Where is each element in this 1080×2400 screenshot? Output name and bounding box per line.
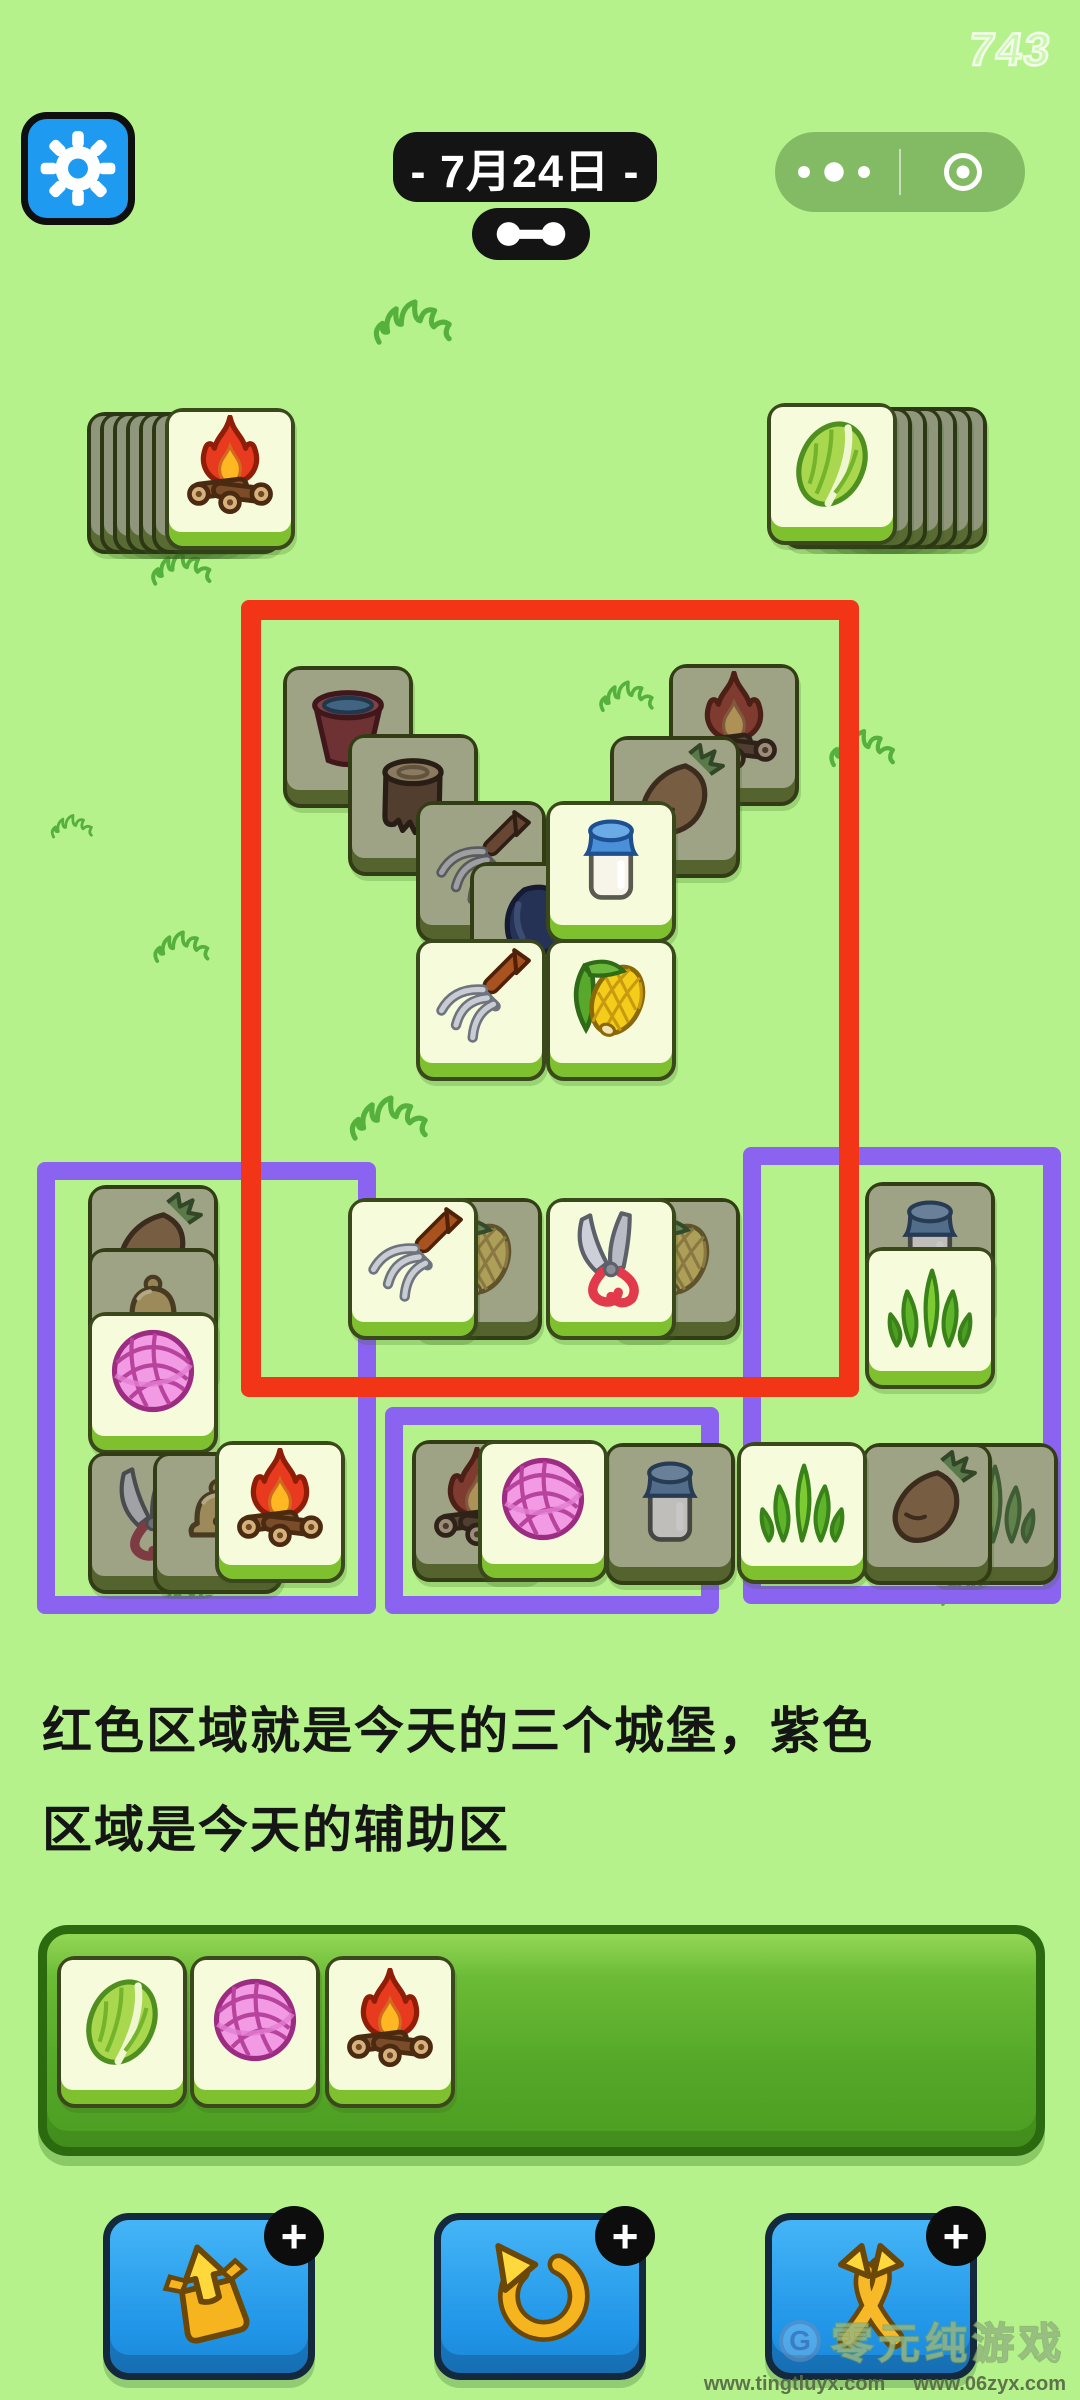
plus-badge[interactable]: + (595, 2206, 655, 2266)
tile-grass[interactable] (865, 1247, 995, 1389)
home-target-icon (938, 147, 988, 197)
tile-yarn[interactable] (88, 1312, 218, 1454)
tile-corn[interactable] (546, 939, 676, 1081)
remaining-counter: 743 (965, 22, 1055, 76)
undo-prop-button[interactable]: + (434, 2213, 646, 2380)
more-dots-icon (791, 157, 883, 187)
tile-yarn[interactable] (478, 1440, 608, 1582)
tray-tile-cabbage (57, 1956, 187, 2108)
gear-icon (36, 127, 120, 210)
watermark-url-1: www.tingtluyx.com (704, 2373, 886, 2396)
tiles-layer (0, 0, 1080, 2400)
caption-line1: 红色区域就是今天的三个城堡，紫色 (42, 1682, 1052, 1781)
settings-button[interactable] (21, 112, 135, 225)
tile-milk (605, 1443, 735, 1585)
plus-badge[interactable]: + (264, 2206, 324, 2266)
tile-milk[interactable] (546, 801, 676, 943)
tile-grass[interactable] (737, 1442, 867, 1584)
eject-prop-button[interactable]: + (103, 2213, 315, 2380)
tile-fire[interactable] (165, 408, 295, 550)
tray-tile-fire (325, 1956, 455, 2108)
tile-pitchfork[interactable] (348, 1198, 478, 1340)
eject-icon (151, 2236, 267, 2352)
undo-icon (482, 2236, 598, 2352)
date-link-pill (472, 208, 590, 260)
watermark-brand: 零元纯游戏 (831, 2310, 1066, 2371)
tile-shears[interactable] (546, 1198, 676, 1340)
plus-badge[interactable]: + (926, 2206, 986, 2266)
game-screen: 743 - 7月24日 - 红色区域就是今天的三个城堡，紫色 区域是今天的辅助区… (0, 0, 1080, 2400)
tray-tile-yarn (190, 1956, 320, 2108)
tile-fire[interactable] (215, 1441, 345, 1583)
tile-pitchfork[interactable] (416, 939, 546, 1081)
caption: 红色区域就是今天的三个城堡，紫色 区域是今天的辅助区 (42, 1682, 1052, 1880)
watermark-url-2: www.06zyx.com (913, 2373, 1066, 2396)
tile-carrot (862, 1443, 992, 1585)
caption-line2: 区域是今天的辅助区 (42, 1781, 1052, 1880)
watermark: G 零元纯游戏 www.tingtluyx.com www.06zyx.com (704, 2310, 1066, 2396)
tile-cabbage[interactable] (767, 403, 897, 545)
exit-button[interactable] (901, 132, 1025, 212)
date-badge: - 7月24日 - (393, 132, 657, 202)
miniprogram-capsule (775, 132, 1025, 212)
more-button[interactable] (775, 132, 899, 212)
dumbbell-icon (489, 216, 573, 252)
watermark-logo: G (779, 2320, 821, 2362)
